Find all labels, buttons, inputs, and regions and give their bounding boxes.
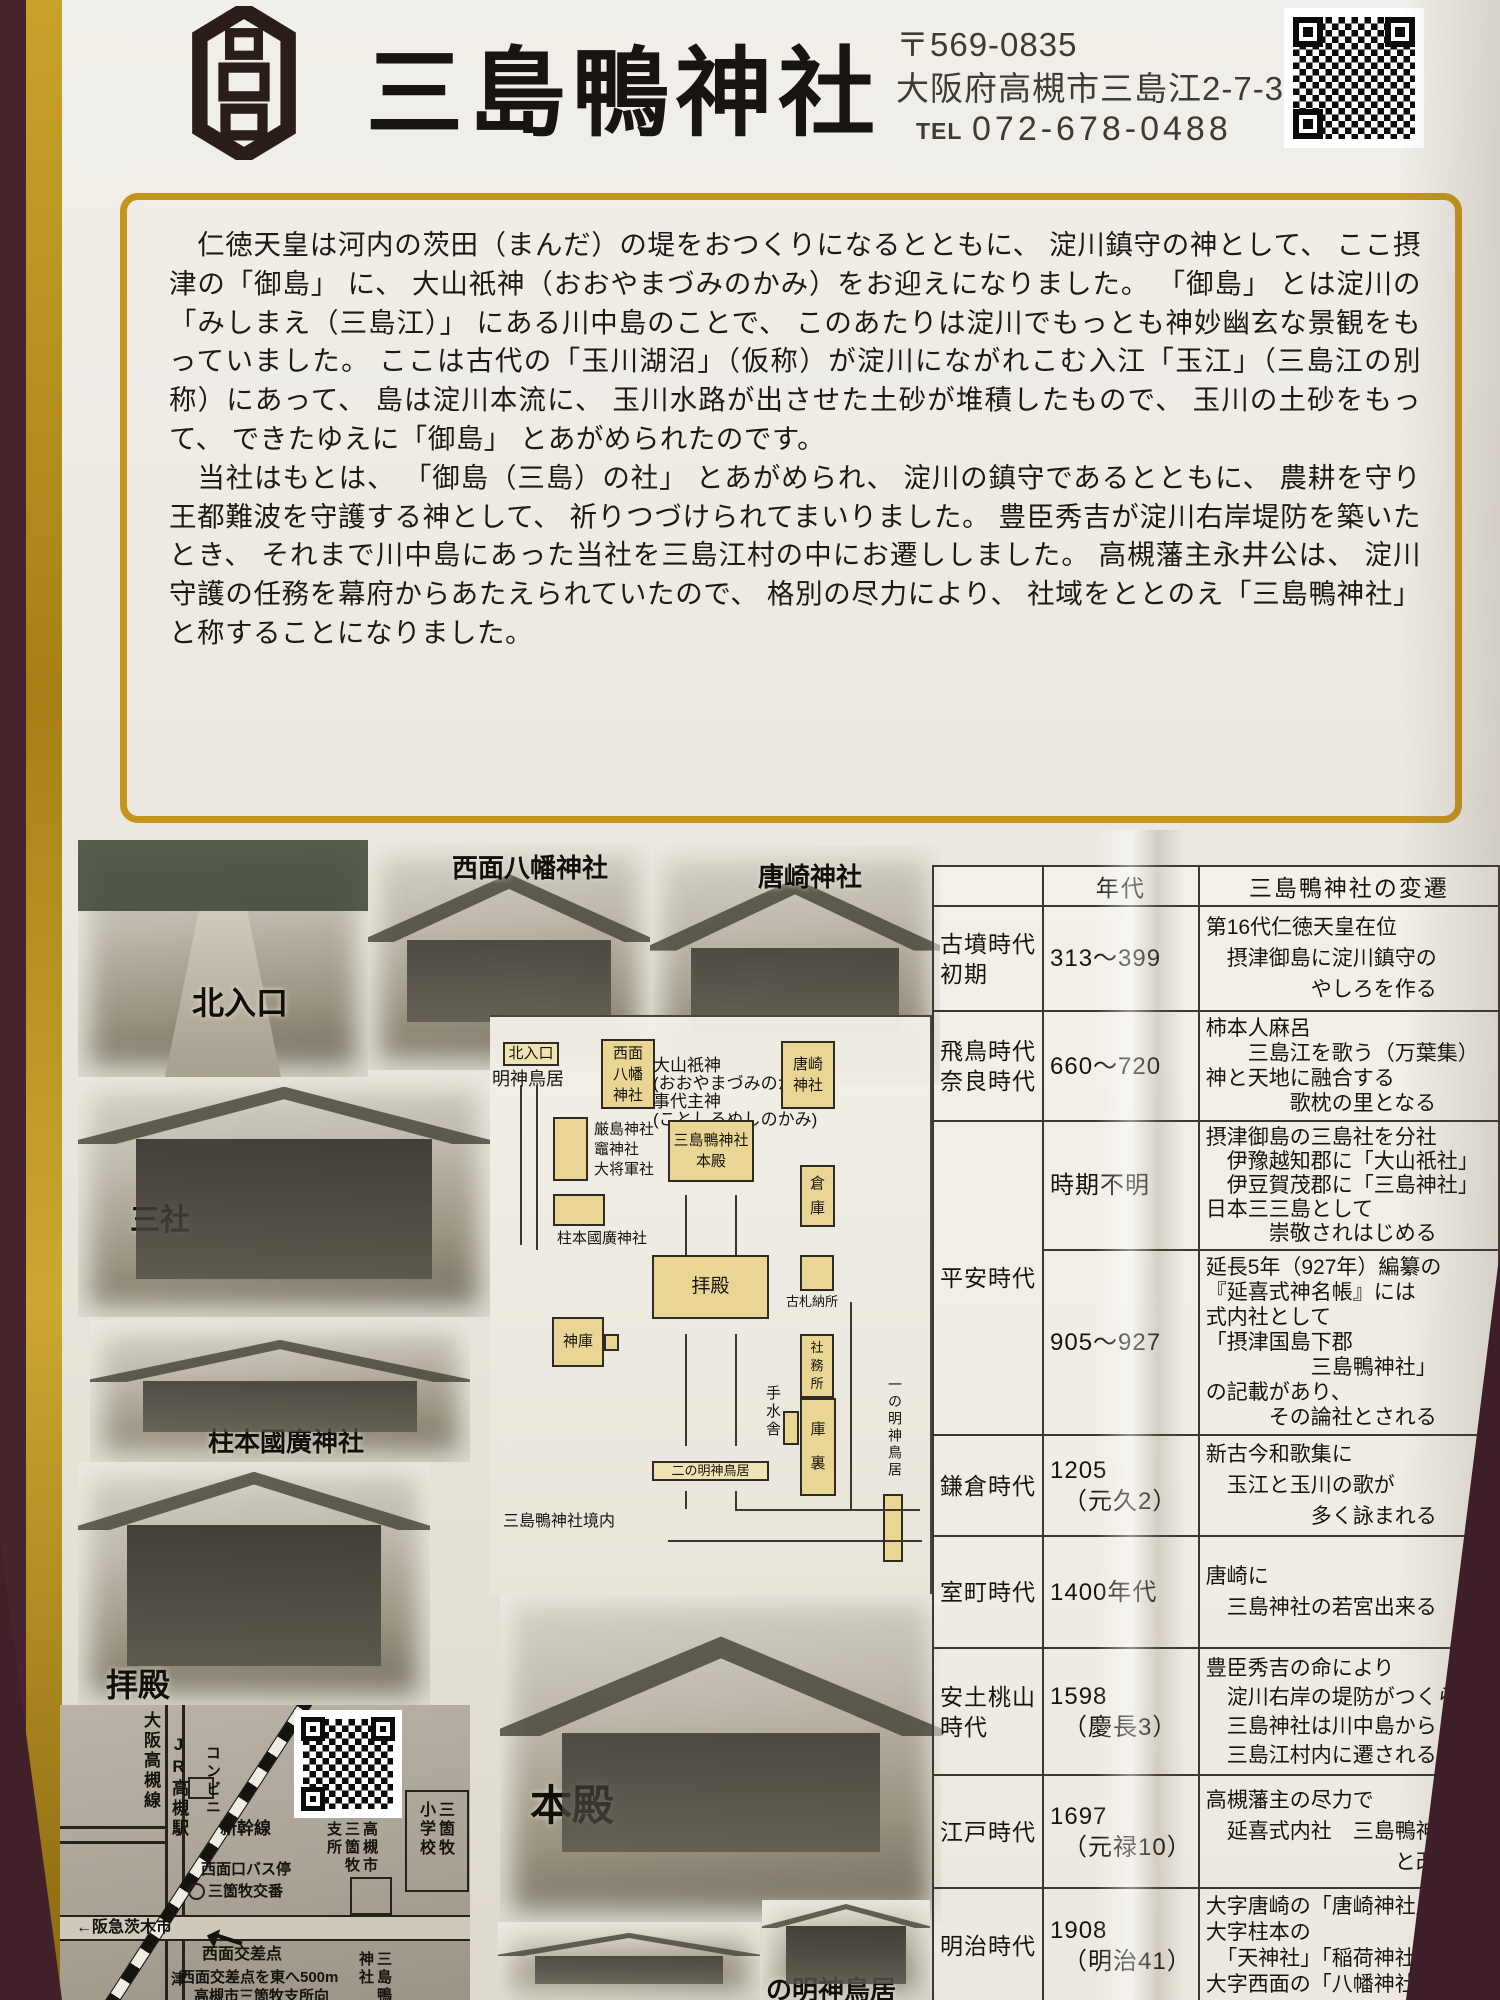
diagram-honden-box: 三島鴨神社 本殿 — [668, 1120, 754, 1182]
diagram-path-line — [850, 1302, 852, 1509]
map-label-convenience-store: コンビニ — [203, 1745, 221, 1817]
timeline-period-cell: 1908 （明治41） — [1043, 1888, 1199, 2000]
diagram-temizusha-box — [783, 1411, 799, 1445]
map-label-direction-1: 西面交差点を東へ500m — [180, 1969, 338, 1987]
timeline-era-cell: 飛鳥時代 奈良時代 — [933, 1011, 1043, 1121]
timeline-period-cell: 時期不明 — [1043, 1121, 1199, 1250]
timeline-events-cell: 延長5年（927年）編纂の 『延喜式神名帳』には 式内社として 「摂津国島下郡 … — [1199, 1250, 1499, 1435]
diagram-path-line — [668, 1540, 922, 1542]
diagram-karasaki-box: 唐崎 神社 — [781, 1041, 835, 1109]
timeline-events-cell: 第16代仁徳天皇在位 摂津御島に淀川鎮守の やしろを作る — [1199, 906, 1499, 1011]
map-label-direction-2: 高槻市三箇牧支所向 — [194, 1988, 329, 2000]
timeline-table: 年代三島鴨神社の変遷古墳時代 初期313～399第16代仁徳天皇在位 摂津御島に… — [932, 865, 1500, 2000]
timeline-period-cell: 1400年代 — [1043, 1536, 1199, 1648]
timeline-period-cell: 905～927 — [1043, 1250, 1199, 1435]
timeline-era-cell: 平安時代 — [933, 1121, 1043, 1435]
timeline-period-cell: 1697 （元禄10） — [1043, 1775, 1199, 1888]
tel-number: 072-678-0488 — [972, 110, 1232, 149]
timeline-era-cell: 明治時代 — [933, 1888, 1043, 2000]
timeline-era-cell: 鎌倉時代 — [933, 1435, 1043, 1536]
timeline-header-0 — [933, 866, 1043, 906]
timeline-row: 平安時代時期不明摂津御島の三島社を分社 伊豫越知郡に「大山祇社」 伊豆賀茂郡に「… — [933, 1121, 1499, 1250]
map-label-mishima-kamo-jinja: 三島鴨 神社 — [356, 1951, 392, 2000]
map-road-line — [60, 1826, 165, 1829]
diagram-path-line — [735, 1509, 920, 1511]
photo-caption-haiden: 拝殿 — [106, 1660, 170, 1705]
timeline-header-1: 年代 — [1043, 866, 1199, 906]
diagram-keidai-label: 三島鴨神社境内 — [503, 1513, 643, 1533]
qr-finder-icon — [1385, 17, 1415, 47]
photo-caption-honden: 本殿 — [530, 1772, 614, 1833]
diagram-ni-no-torii-tag: 二の明神鳥居 — [652, 1461, 769, 1481]
diagram-kosatsu-box — [800, 1255, 834, 1291]
map-label-hankyu-ibaraki: ←阪急茨木市 — [76, 1918, 172, 1937]
map-label-city-branch-office: 高槻市 三箇牧 支所 — [324, 1821, 378, 1875]
map-label-shinkansen: 新幹線 — [220, 1819, 271, 1839]
map-road-line — [60, 1841, 165, 1844]
photo-honden: 本殿 — [500, 1590, 942, 1922]
diagram-path-line — [685, 1491, 687, 1509]
timeline-row: 鎌倉時代1205 （元久2）新古今和歌集に 玉江と玉川の歌が 多く詠まれる — [933, 1435, 1499, 1536]
timeline-row: 安土桃山 時代1598 （慶長3）豊臣秀吉の命により 淀川右岸の堤防がつくられ … — [933, 1648, 1499, 1775]
diagram-path-line — [735, 1195, 737, 1255]
photo-haiden: 拝殿 — [78, 1462, 430, 1705]
shrine-crest-icon — [182, 6, 306, 160]
timeline-era-cell: 安土桃山 時代 — [933, 1648, 1043, 1775]
diagram-haiden-box: 拝殿 — [652, 1255, 769, 1319]
photo-caption-small-right: の明神鳥居 — [766, 1970, 896, 2000]
photo-caption-karasaki: 唐崎神社 — [758, 857, 862, 894]
timeline-events-cell: 摂津御島の三島社を分社 伊豫越知郡に「大山祇社」 伊豆賀茂郡に「三島神社」 日本… — [1199, 1121, 1499, 1250]
timeline-period-cell: 1205 （元久2） — [1043, 1435, 1199, 1536]
map-label-seimen-crossing: 西面交差点 — [202, 1945, 282, 1964]
map-building-branch-office — [350, 1877, 392, 1915]
diagram-ichi-no-torii-box — [883, 1494, 903, 1562]
timeline-era-cell: 江戸時代 — [933, 1775, 1043, 1888]
diagram-kita-iriguchi-tag: 北入口 — [503, 1042, 559, 1066]
timeline-period-cell: 1598 （慶長3） — [1043, 1648, 1199, 1775]
qr-finder-icon — [371, 1717, 395, 1741]
address: 大阪府高槻市三島江2-7-37 — [896, 62, 1303, 110]
diagram-path-line — [735, 1334, 737, 1446]
photo-small-right: の明神鳥居 — [762, 1900, 930, 2000]
postal-code: 〒569-0835 — [896, 18, 1077, 66]
diagram-soko-box: 倉 庫 — [800, 1165, 835, 1227]
photo-small-left — [498, 1922, 760, 2000]
diagram-path-line — [536, 1085, 538, 1250]
qr-finder-icon — [1293, 109, 1323, 139]
photo-sansha: 三社 — [78, 1077, 490, 1317]
gold-edge-stripe — [26, 0, 62, 2000]
tel-label: TEL — [916, 118, 962, 145]
map-label-sankamaki-police-box: 三箇牧交番 — [208, 1883, 283, 1901]
intro-paragraph-2: 当社はもとは、 「御島（三島）の社」 とあがめられ、 淀川の鎮守であるとともに、… — [169, 459, 1421, 653]
diagram-kuri-box: 庫 裏 — [800, 1398, 836, 1496]
timeline-era-cell: 室町時代 — [933, 1536, 1043, 1648]
timeline-row: 室町時代1400年代唐崎に 三島神社の若宮出来る — [933, 1536, 1499, 1648]
photo-caption-kita: 北入口 — [192, 978, 288, 1024]
timeline-era-cell: 古墳時代 初期 — [933, 906, 1043, 1011]
map-police-box-icon — [188, 1883, 205, 1900]
intro-text: 仁徳天皇は河内の茨田（まんだ）の堤をおつくりになるとともに、 淀川鎮守の神として… — [169, 226, 1421, 653]
photo-hashiramoto: 柱本國廣神社 — [90, 1320, 470, 1462]
diagram-path-line — [685, 1334, 687, 1446]
map-label-osaka-takatsuki-line: 大阪高槻線 — [140, 1711, 160, 1811]
map-label-seimen-bus-stop: 西面口バス停 — [201, 1861, 291, 1879]
qr-code — [1284, 8, 1424, 148]
timeline-events-cell: 新古今和歌集に 玉江と玉川の歌が 多く詠まれる — [1199, 1435, 1499, 1536]
timeline-events-cell: 柿本人麻呂 三島江を歌う（万葉集） 神と天地に融合する 歌枕の里となる — [1199, 1011, 1499, 1121]
diagram-ichi-no-torii-label: 一の明神鳥居 — [883, 1377, 903, 1493]
pamphlet-photo: 三島鴨神社 〒569-0835 大阪府高槻市三島江2-7-37 TEL 072-… — [0, 0, 1500, 2000]
photo-kita: 北入口 — [78, 840, 368, 1077]
intro-paragraph-1: 仁徳天皇は河内の茨田（まんだ）の堤をおつくりになるとともに、 淀川鎮守の神として… — [169, 226, 1421, 459]
timeline-period-cell: 313～399 — [1043, 906, 1199, 1011]
access-map: 大阪高槻線JR高槻駅コンビニ新幹線西面口バス停三箇牧交番高槻市 三箇牧 支所三箇… — [60, 1705, 470, 2000]
diagram-kosatsu-label: 古札納所 — [786, 1294, 856, 1312]
diagram-sansha-box — [553, 1117, 588, 1181]
diagram-shinko-tab — [604, 1334, 619, 1351]
photo-caption-hashiramoto: 柱本國廣神社 — [208, 1422, 364, 1459]
map-label-tsu-road: 津 — [168, 1971, 186, 1989]
diagram-path-line — [735, 1491, 737, 1509]
timeline-row: 江戸時代1697 （元禄10）高槻藩主の尽力で 延喜式内社 三島鴨神社 と改称 — [933, 1775, 1499, 1888]
timeline-period-cell: 660～720 — [1043, 1011, 1199, 1121]
diagram-hashiramoto-label: 柱本國廣神社 — [557, 1230, 667, 1250]
qr-finder-icon — [301, 1787, 325, 1811]
qr-finder-icon — [301, 1717, 325, 1741]
photo-caption-sansha: 三社 — [130, 1195, 190, 1239]
map-label-jr-takatsuki-station: JR高槻駅 — [168, 1735, 188, 1839]
history-timeline-table: 年代三島鴨神社の変遷古墳時代 初期313～399第16代仁徳天皇在位 摂津御島に… — [932, 865, 1500, 2000]
timeline-header-2: 三島鴨神社の変遷 — [1199, 866, 1499, 906]
shrine-grounds-diagram: 北入口明神鳥居西面 八幡 神社大山祇神 (おおやまづみのかみ) 事代主神 (こと… — [490, 1015, 932, 1594]
diagram-hashiramoto-box — [553, 1194, 605, 1226]
diagram-path-line — [520, 1085, 522, 1245]
map-label-sankamaki-elementary: 三箇牧 小学校 — [416, 1801, 454, 1858]
intro-gold-box: 仁徳天皇は河内の茨田（まんだ）の堤をおつくりになるとともに、 淀川鎮守の神として… — [120, 193, 1462, 823]
diagram-temizusha-label: 手水舎 — [761, 1385, 781, 1447]
diagram-path-line — [685, 1195, 687, 1255]
timeline-row: 古墳時代 初期313～399第16代仁徳天皇在位 摂津御島に淀川鎮守の やしろを… — [933, 906, 1499, 1011]
diagram-shamusho-box: 社 務 所 — [800, 1334, 834, 1398]
diagram-shinko-box: 神庫 — [552, 1317, 604, 1367]
diagram-seimen-hachiman-box: 西面 八幡 神社 — [601, 1039, 655, 1109]
qr-finder-icon — [1293, 17, 1323, 47]
map-qr-code — [294, 1710, 402, 1818]
page-title: 三島鴨神社 — [366, 14, 926, 134]
timeline-row: 飛鳥時代 奈良時代660～720柿本人麻呂 三島江を歌う（万葉集） 神と天地に融… — [933, 1011, 1499, 1121]
photo-caption-seimen: 西面八幡神社 — [452, 848, 608, 885]
